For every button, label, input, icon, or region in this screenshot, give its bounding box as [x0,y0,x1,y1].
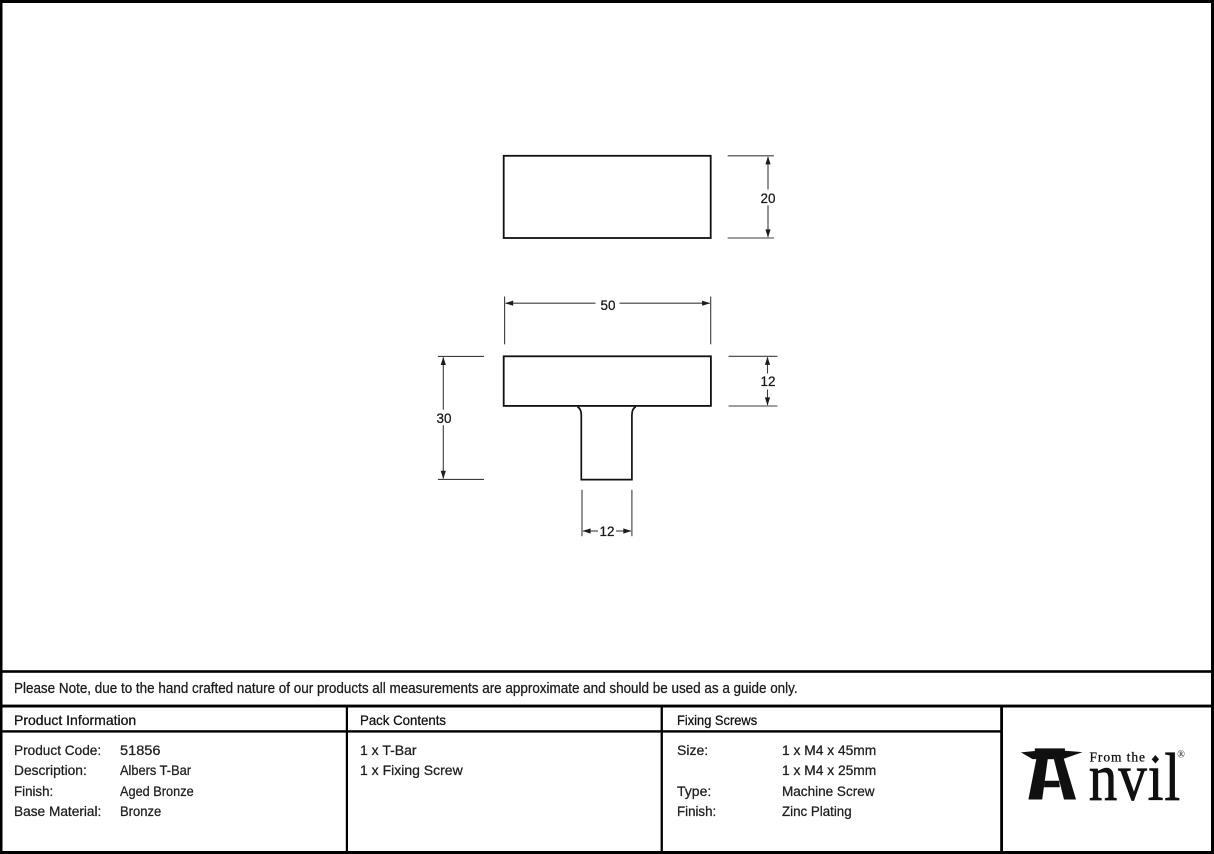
svg-text:®: ® [1177,750,1185,761]
svg-text:nvil: nvil [1089,739,1181,815]
